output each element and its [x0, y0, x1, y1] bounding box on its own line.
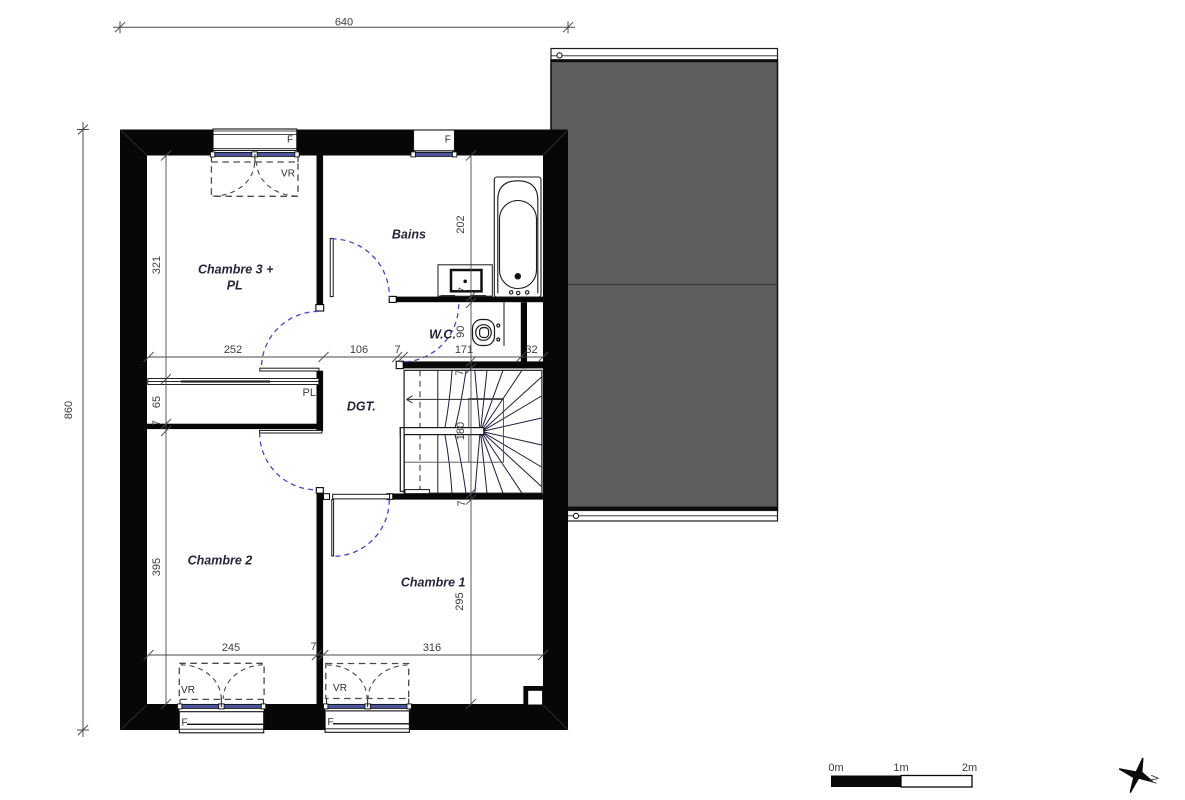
svg-text:7: 7 [151, 420, 163, 426]
svg-text:VR: VR [181, 685, 195, 696]
svg-text:2m: 2m [962, 762, 977, 774]
svg-text:F: F [182, 718, 188, 729]
svg-text:245: 245 [222, 642, 240, 654]
svg-text:316: 316 [423, 642, 441, 654]
svg-text:180: 180 [455, 422, 467, 440]
svg-text:7: 7 [310, 641, 316, 653]
svg-text:0m: 0m [828, 762, 843, 774]
svg-text:7: 7 [394, 344, 400, 356]
svg-text:202: 202 [455, 215, 467, 233]
svg-text:PL: PL [303, 387, 316, 399]
svg-text:640: 640 [335, 16, 353, 28]
svg-text:7: 7 [457, 287, 469, 293]
svg-text:VR: VR [281, 169, 295, 180]
svg-text:Chambre 1: Chambre 1 [401, 576, 466, 590]
svg-text:295: 295 [454, 592, 466, 610]
svg-text:32: 32 [525, 344, 537, 356]
svg-text:PL: PL [227, 279, 243, 293]
svg-text:860: 860 [63, 401, 75, 419]
svg-text:1m: 1m [893, 762, 908, 774]
svg-text:F: F [445, 135, 451, 146]
svg-text:DGT.: DGT. [347, 400, 376, 414]
svg-text:Chambre 3 +: Chambre 3 + [198, 263, 274, 277]
svg-text:321: 321 [151, 256, 163, 274]
svg-text:395: 395 [151, 558, 163, 576]
svg-text:F: F [287, 135, 293, 146]
svg-text:7: 7 [454, 369, 466, 375]
svg-text:171: 171 [455, 344, 473, 356]
svg-text:W.C.: W.C. [429, 328, 456, 342]
svg-text:Bains: Bains [392, 228, 426, 242]
svg-text:90: 90 [455, 326, 467, 338]
svg-text:65: 65 [151, 396, 163, 408]
svg-text:VR: VR [333, 683, 347, 694]
svg-text:F: F [328, 717, 334, 728]
svg-text:252: 252 [224, 344, 242, 356]
svg-text:106: 106 [350, 344, 368, 356]
svg-text:N: N [1146, 773, 1160, 785]
svg-text:7: 7 [456, 500, 468, 506]
svg-text:Chambre 2: Chambre 2 [188, 553, 253, 567]
